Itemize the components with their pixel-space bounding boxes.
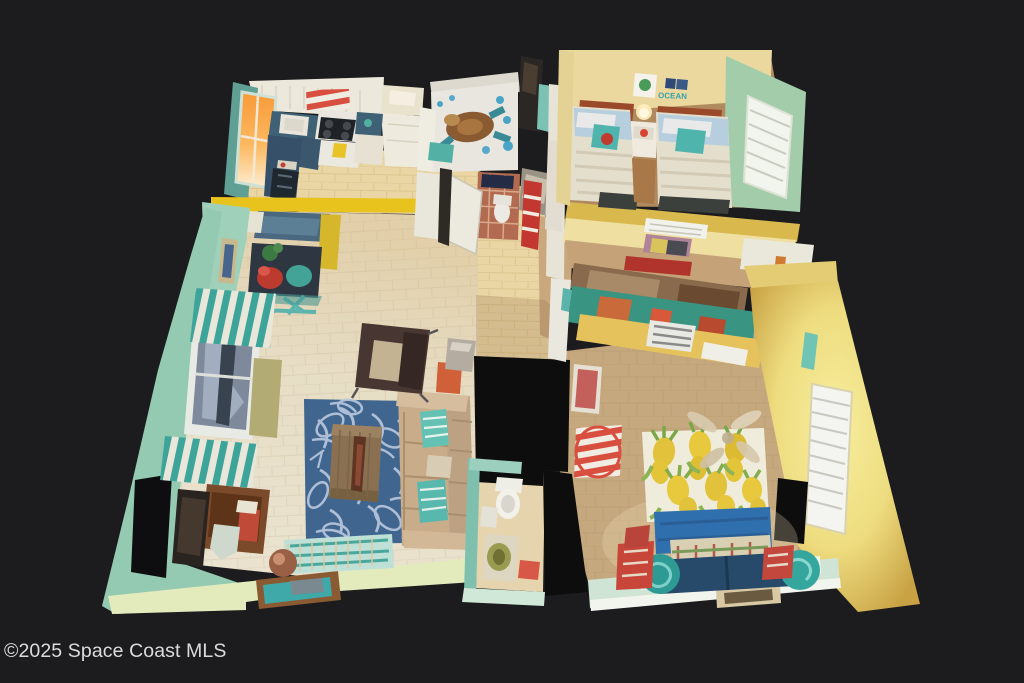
svg-text:OCEAN: OCEAN — [658, 91, 687, 101]
